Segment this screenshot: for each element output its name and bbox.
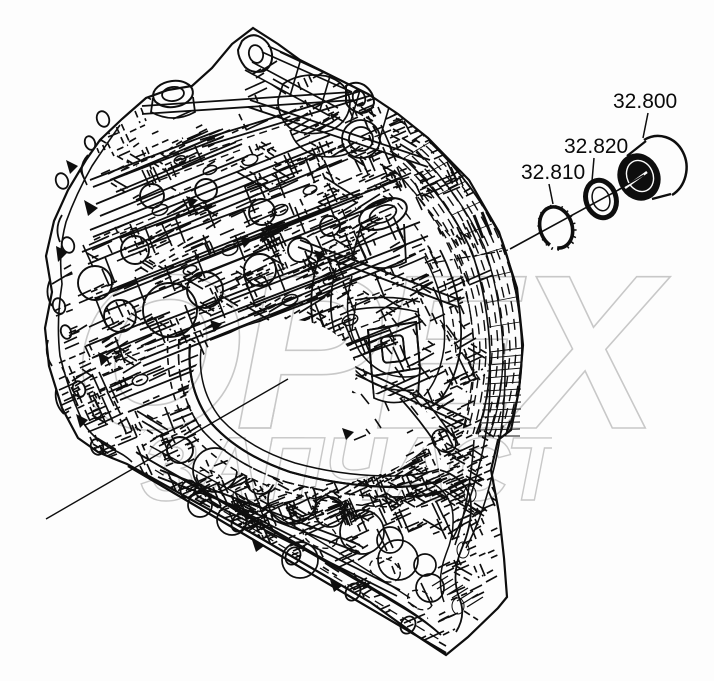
svg-text:32.810: 32.810 (521, 161, 585, 184)
svg-text:32.800: 32.800 (613, 90, 677, 113)
svg-text:32.820: 32.820 (564, 135, 628, 158)
